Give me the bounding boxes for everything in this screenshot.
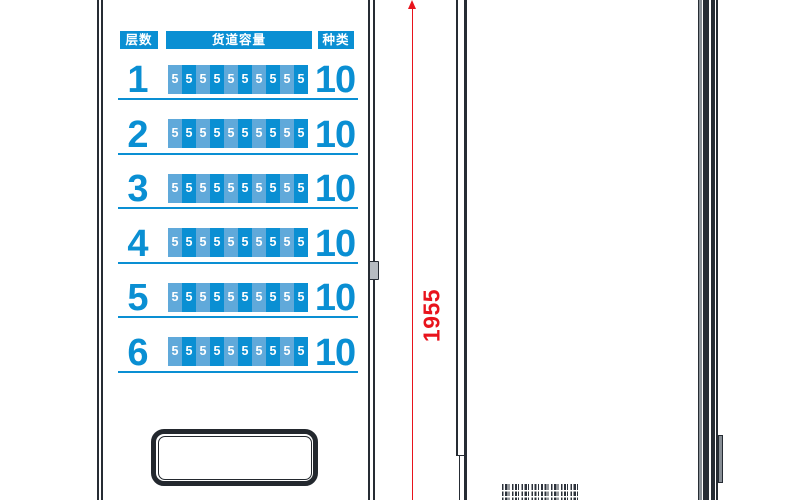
front-frame-right-outer-line xyxy=(373,0,376,500)
side-front-edge-upper-line xyxy=(456,0,458,456)
layer-number: 4 xyxy=(118,227,158,262)
pickup-door-inner-line xyxy=(158,436,312,480)
slot-capacity-cell: 5 xyxy=(210,337,224,366)
slot-capacity-cell: 5 xyxy=(294,283,308,312)
capacity-row: 3555555555510 xyxy=(118,155,358,210)
capacity-row: 4555555555510 xyxy=(118,209,358,264)
slot-capacity-cell: 5 xyxy=(294,65,308,94)
slot-capacity-cell: 5 xyxy=(252,119,266,148)
slot-capacity-cell: 5 xyxy=(266,228,280,257)
slot-capacity-cell: 5 xyxy=(294,174,308,203)
dimension-line xyxy=(412,6,414,500)
slot-capacity-cell: 5 xyxy=(238,228,252,257)
slot-capacity-cell: 5 xyxy=(238,283,252,312)
slot-capacity-cell: 5 xyxy=(280,283,294,312)
slot-capacity-cell: 5 xyxy=(182,337,196,366)
slot-capacity-cell: 5 xyxy=(224,228,238,257)
layer-number: 5 xyxy=(118,281,158,316)
slot-capacity-cell: 5 xyxy=(280,65,294,94)
slot-capacity-cell: 5 xyxy=(280,119,294,148)
front-frame-left-outer-line xyxy=(97,0,99,500)
slot-capacity-cell: 5 xyxy=(196,337,210,366)
side-front-edge-lower-line xyxy=(459,456,461,500)
slot-capacity-cell: 5 xyxy=(210,283,224,312)
slot-capacity-cell: 5 xyxy=(224,174,238,203)
slot-capacity-cell: 5 xyxy=(224,337,238,366)
back-panel-stripe xyxy=(716,0,718,500)
front-frame-left-inner-line xyxy=(101,0,104,500)
capacity-row: 1555555555510 xyxy=(118,46,358,101)
slot-capacity-cell: 5 xyxy=(182,228,196,257)
slot-capacity-cell: 5 xyxy=(266,283,280,312)
slot-capacity-cell: 5 xyxy=(210,174,224,203)
type-count: 10 xyxy=(314,63,356,98)
slot-cells: 5555555555 xyxy=(168,65,308,94)
layer-number: 3 xyxy=(118,172,158,207)
slot-capacity-cell: 5 xyxy=(196,65,210,94)
slot-capacity-cell: 5 xyxy=(182,65,196,94)
slot-capacity-cell: 5 xyxy=(280,228,294,257)
slot-capacity-cell: 5 xyxy=(280,174,294,203)
side-front-edge-main-line xyxy=(464,0,467,500)
capacity-row: 5555555555510 xyxy=(118,264,358,319)
side-back-panel xyxy=(698,0,718,500)
slot-capacity-cell: 5 xyxy=(196,174,210,203)
slot-capacity-cell: 5 xyxy=(266,65,280,94)
capacity-row: 6555555555510 xyxy=(118,318,358,373)
type-count: 10 xyxy=(314,227,356,262)
slot-capacity-cell: 5 xyxy=(182,283,196,312)
slot-capacity-cell: 5 xyxy=(252,65,266,94)
dimension-value: 1955 xyxy=(419,285,446,347)
pickup-door xyxy=(151,429,318,486)
slot-capacity-cell: 5 xyxy=(168,174,182,203)
front-frame-right-inner-line xyxy=(368,0,370,500)
capacity-rows: 1555555555510255555555551035555555555104… xyxy=(118,46,358,373)
slot-capacity-cell: 5 xyxy=(196,283,210,312)
slot-capacity-cell: 5 xyxy=(266,337,280,366)
slot-capacity-cell: 5 xyxy=(266,119,280,148)
slot-capacity-cell: 5 xyxy=(252,228,266,257)
slot-cells: 5555555555 xyxy=(168,283,308,312)
slot-capacity-cell: 5 xyxy=(252,337,266,366)
slot-capacity-cell: 5 xyxy=(168,228,182,257)
slot-capacity-cell: 5 xyxy=(280,337,294,366)
slot-capacity-cell: 5 xyxy=(224,65,238,94)
slot-capacity-cell: 5 xyxy=(168,119,182,148)
slot-capacity-cell: 5 xyxy=(252,283,266,312)
slot-capacity-cell: 5 xyxy=(294,337,308,366)
door-lock xyxy=(369,261,379,280)
layer-number: 1 xyxy=(118,63,158,98)
slot-capacity-cell: 5 xyxy=(238,119,252,148)
slot-capacity-cell: 5 xyxy=(252,174,266,203)
capacity-row: 2555555555510 xyxy=(118,100,358,155)
slot-cells: 5555555555 xyxy=(168,337,308,366)
slot-capacity-cell: 5 xyxy=(224,119,238,148)
slot-capacity-cell: 5 xyxy=(168,65,182,94)
type-count: 10 xyxy=(314,118,356,153)
slot-capacity-cell: 5 xyxy=(210,228,224,257)
type-count: 10 xyxy=(314,336,356,371)
slot-capacity-cell: 5 xyxy=(294,119,308,148)
slot-cells: 5555555555 xyxy=(168,228,308,257)
layer-number: 6 xyxy=(118,336,158,371)
slot-capacity-cell: 5 xyxy=(238,65,252,94)
spec-label-barcode xyxy=(502,484,578,500)
slot-cells: 5555555555 xyxy=(168,174,308,203)
slot-capacity-cell: 5 xyxy=(182,174,196,203)
layer-number: 2 xyxy=(118,118,158,153)
slot-capacity-cell: 5 xyxy=(168,283,182,312)
slot-capacity-cell: 5 xyxy=(196,228,210,257)
slot-capacity-cell: 5 xyxy=(168,337,182,366)
slot-capacity-cell: 5 xyxy=(238,174,252,203)
slot-capacity-cell: 5 xyxy=(266,174,280,203)
slot-capacity-cell: 5 xyxy=(182,119,196,148)
slot-capacity-cell: 5 xyxy=(196,119,210,148)
slot-capacity-cell: 5 xyxy=(238,337,252,366)
vending-machine-spec-drawing: 层数 货道容量 种类 15555555555102555555555510355… xyxy=(0,0,790,500)
slot-capacity-cell: 5 xyxy=(210,65,224,94)
slot-capacity-cell: 5 xyxy=(210,119,224,148)
slot-cells: 5555555555 xyxy=(168,119,308,148)
side-front-edge-step xyxy=(456,455,467,457)
slot-capacity-cell: 5 xyxy=(224,283,238,312)
type-count: 10 xyxy=(314,172,356,207)
type-count: 10 xyxy=(314,281,356,316)
slot-capacity-cell: 5 xyxy=(294,228,308,257)
back-hinge xyxy=(718,435,724,483)
